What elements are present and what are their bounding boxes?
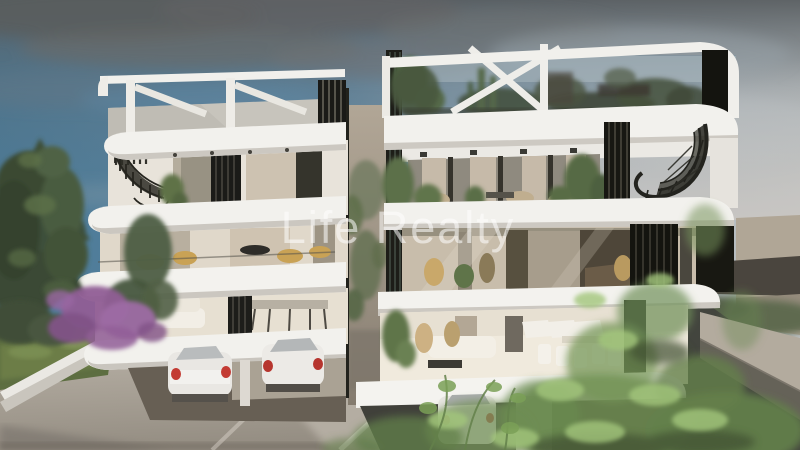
svg-text:Life Realty: Life Realty bbox=[281, 202, 516, 253]
